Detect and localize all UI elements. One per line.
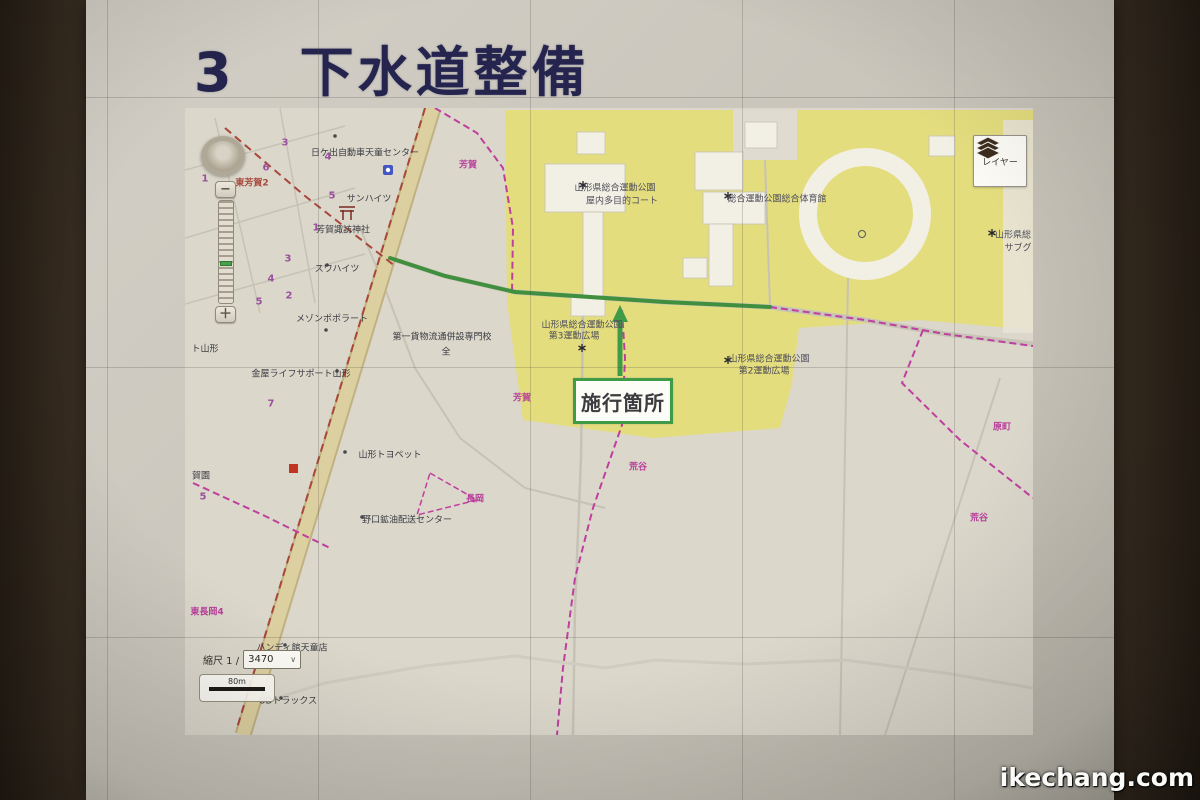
map-label: 芳賀 bbox=[513, 391, 531, 404]
map-label: 山形県総合運動公園 bbox=[574, 181, 655, 194]
map-label: 山形県総 bbox=[995, 228, 1031, 241]
map-label: 原町 bbox=[993, 420, 1011, 433]
map-label: ト山形 bbox=[191, 342, 218, 355]
screen-seam bbox=[742, 0, 743, 800]
projection-screen: 3下水道整備 bbox=[86, 0, 1114, 800]
scale-bar-label: 80m bbox=[206, 677, 268, 686]
map-number: 3 bbox=[285, 254, 292, 265]
shrine-torii-icon bbox=[339, 207, 355, 220]
chevron-down-icon: ∨ bbox=[290, 655, 296, 664]
slide-number: 3 bbox=[194, 41, 236, 104]
map-label: 第2運動広場 bbox=[739, 364, 790, 377]
map-label: 屋内多目的コート bbox=[586, 194, 658, 207]
scale-bar-line bbox=[209, 687, 265, 691]
map-label: 東芳賀2 bbox=[235, 176, 268, 189]
map-number: 4 bbox=[325, 152, 332, 163]
map-label: 全 bbox=[441, 345, 450, 358]
screen-seam bbox=[86, 97, 1114, 98]
map-label: 野口鉱油配送センター bbox=[362, 513, 452, 526]
map-label: スワハイツ bbox=[315, 262, 360, 275]
screen-seam bbox=[530, 0, 531, 800]
scale-select[interactable]: 3470 ∨ bbox=[243, 650, 301, 669]
screen-seam bbox=[954, 0, 955, 800]
layers-button[interactable]: レイヤー bbox=[973, 135, 1027, 187]
pan-compass[interactable] bbox=[201, 136, 245, 176]
scale-bar: 80m bbox=[199, 674, 275, 702]
screen-seam bbox=[318, 0, 319, 800]
scale-control: 縮尺 1 / 3470 ∨ bbox=[203, 650, 301, 669]
map-number: 4 bbox=[268, 274, 275, 285]
screen-seam bbox=[107, 0, 108, 800]
scale-select-value: 3470 bbox=[248, 654, 273, 665]
zoom-slider-thumb[interactable] bbox=[220, 261, 232, 266]
zoom-in-button[interactable]: ＋ bbox=[215, 306, 236, 323]
map-label: 芳賀諏訪神社 bbox=[316, 223, 370, 236]
map-number: 5 bbox=[329, 191, 336, 202]
map-number: 5 bbox=[256, 297, 263, 308]
map-number: 6 bbox=[263, 163, 270, 174]
map-viewport[interactable]: 日ケ出自動車天童センター 芳賀 東芳賀2 サンハイツ 芳賀諏訪神社 スワハイツ … bbox=[185, 108, 1033, 735]
map-label: メゾンポポラート bbox=[296, 312, 368, 325]
slide-title-text: 下水道整備 bbox=[300, 41, 590, 104]
layers-icon bbox=[974, 136, 1002, 160]
map-label: 第3運動広場 bbox=[549, 329, 600, 342]
map-number: 2 bbox=[286, 291, 293, 302]
screen-seam bbox=[86, 637, 1114, 638]
map-label: 山形トヨペット bbox=[358, 448, 421, 461]
poi-red-square bbox=[289, 464, 298, 473]
poi-blue-icon bbox=[383, 165, 393, 175]
map-label: サンハイツ bbox=[347, 192, 392, 205]
screen-seam bbox=[86, 367, 1114, 368]
map-number: 3 bbox=[282, 138, 289, 149]
map-label: サブグ bbox=[1004, 241, 1031, 254]
map-label: 長岡 bbox=[466, 492, 484, 505]
map-label: 賀園 bbox=[192, 469, 210, 482]
map-label: 金屋ライフサポート山形 bbox=[251, 367, 350, 380]
scale-prefix-label: 縮尺 1 / bbox=[203, 652, 239, 667]
map-label: 第一貨物流通併設専門校 bbox=[392, 330, 491, 343]
map-label: 東長岡4 bbox=[190, 605, 223, 618]
map-label: 芳賀 bbox=[459, 158, 477, 171]
watermark: ikechang.com bbox=[1000, 763, 1194, 792]
map-number: 7 bbox=[268, 399, 275, 410]
zoom-out-button[interactable]: − bbox=[215, 181, 236, 198]
construction-site-callout: 施行箇所 bbox=[573, 378, 673, 424]
map-number: 1 bbox=[202, 174, 209, 185]
map-label: 荒谷 bbox=[970, 511, 988, 524]
map-number: 5 bbox=[200, 492, 207, 503]
zoom-slider[interactable] bbox=[218, 200, 234, 304]
map-label: 荒谷 bbox=[629, 460, 647, 473]
